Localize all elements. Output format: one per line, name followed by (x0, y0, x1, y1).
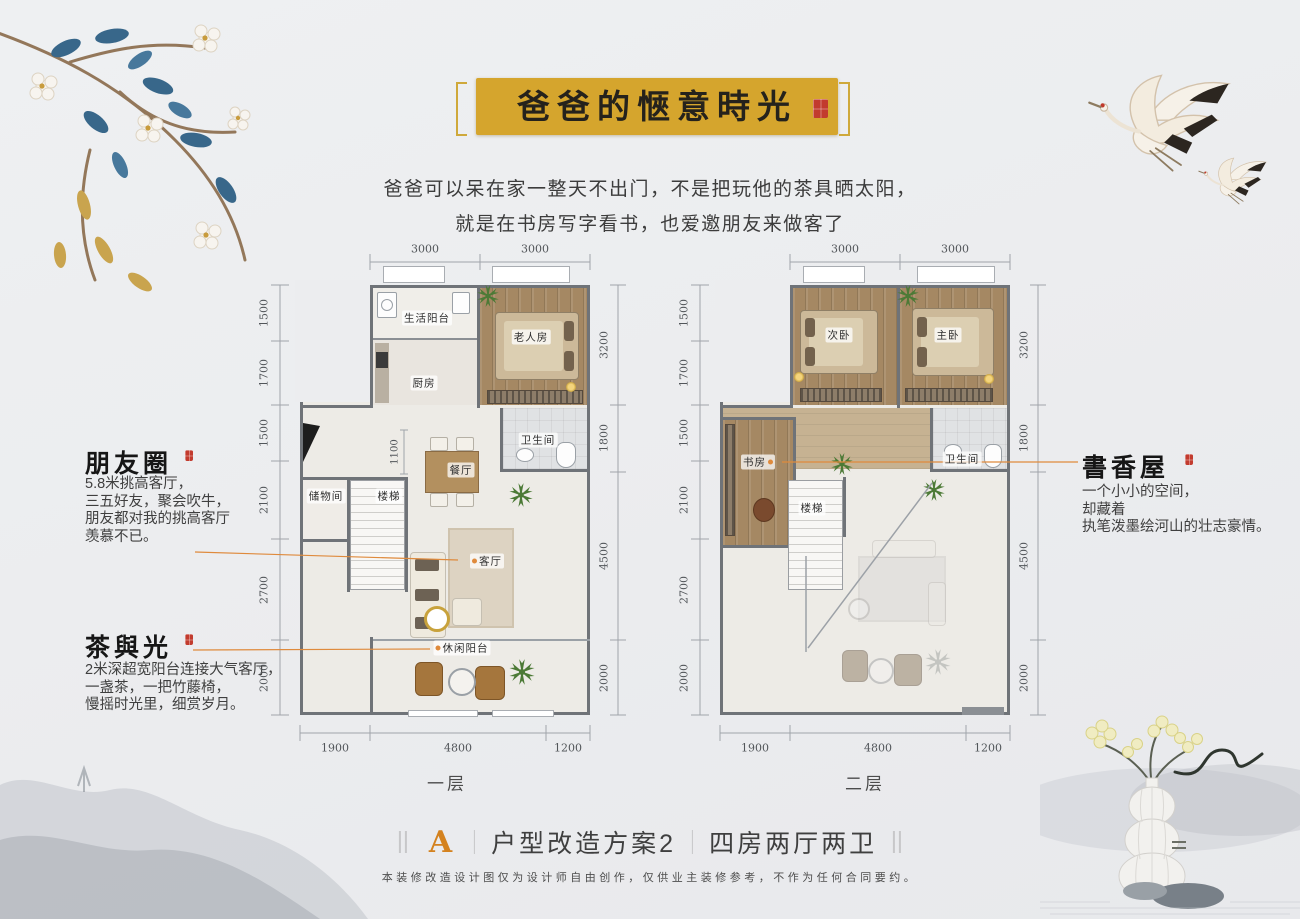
floor1-label: 一层 (427, 770, 467, 795)
floor2-plan: 次卧 主卧 书房 卫生间 楼梯 (0, 0, 1300, 919)
dim: 1200 (554, 742, 582, 755)
dim: 3000 (521, 243, 549, 256)
window (917, 266, 995, 283)
f2-notch (715, 280, 792, 402)
f1-label-elder-room: 老人房 (512, 330, 551, 345)
dim: 4500 (1018, 542, 1031, 570)
dim: 1800 (1018, 424, 1031, 452)
dim: 2100 (678, 486, 691, 514)
dim: 2000 (678, 664, 691, 692)
lamp-icon (984, 374, 994, 384)
dim: 3000 (411, 243, 439, 256)
dim: 1500 (678, 419, 691, 447)
toilet-icon (984, 444, 1002, 468)
plant-icon (896, 284, 920, 308)
callout-dot (768, 460, 773, 465)
dim: 2000 (1018, 664, 1031, 692)
dim: 3000 (831, 243, 859, 256)
wardrobe-icon (800, 388, 882, 402)
disclaimer-text: 本装修改造设计图仅为设计师自由创作，仅供业主装修参考，不作为任何合同要约。 (382, 869, 919, 885)
wardrobe-icon (905, 388, 993, 402)
divider (405, 831, 407, 853)
window (962, 707, 1004, 715)
dim: 4500 (598, 542, 611, 570)
floor2-label: 二层 (845, 770, 885, 795)
f1-label-stairs: 楼梯 (376, 489, 403, 504)
caption-scheme: 户型改造方案2 (491, 824, 676, 860)
callout-dot (472, 559, 477, 564)
f2-label-master-bedroom: 主卧 (935, 328, 962, 343)
f2-label-bathroom: 卫生间 (943, 452, 982, 467)
f1-label-service-balcony: 生活阳台 (402, 311, 452, 326)
f2-label-study: 书房 (741, 455, 775, 470)
plant-icon (922, 478, 946, 502)
f2-label-second-bedroom: 次卧 (826, 328, 853, 343)
ghost-chair (894, 654, 922, 686)
divider (474, 830, 475, 854)
dim: 1500 (258, 419, 271, 447)
divider (692, 830, 693, 854)
dim: 2000 (258, 664, 271, 692)
f2-label-stairs: 楼梯 (799, 501, 826, 516)
divider (399, 831, 401, 853)
dim: 2700 (258, 576, 271, 604)
dim: 3200 (1018, 331, 1031, 359)
f1-label-bathroom: 卫生间 (519, 433, 558, 448)
lamp-icon (794, 372, 804, 382)
plant-icon (830, 452, 854, 476)
dim: 1100 (390, 439, 401, 464)
f1-label-living: 客厅 (470, 554, 504, 569)
caption-layout: 四房两厅两卫 (709, 824, 877, 860)
divider (893, 831, 895, 853)
ghost-sofa (928, 582, 946, 626)
dim: 2700 (678, 576, 691, 604)
dim: 4800 (864, 742, 892, 755)
poster-root: 爸爸的愜意時光 爸爸可以呆在家一整天不出门，不是把玩他的茶具晒太阳， 就是在书房… (0, 0, 1300, 919)
divider (899, 831, 901, 853)
callout-dot (436, 646, 441, 651)
plan-letter: A (429, 825, 452, 860)
f2-stairs (788, 480, 843, 590)
window (803, 266, 865, 283)
ghost-sofa (872, 540, 936, 558)
dim: 1800 (598, 424, 611, 452)
dim: 2000 (598, 664, 611, 692)
dim: 2100 (258, 486, 271, 514)
dim: 3000 (941, 243, 969, 256)
f1-label-storage: 储物间 (307, 489, 346, 504)
ghost-table (848, 598, 870, 620)
dim: 1500 (258, 299, 271, 327)
f1-label-kitchen: 厨房 (411, 376, 438, 391)
dim: 1700 (678, 359, 691, 387)
dim: 1900 (321, 742, 349, 755)
ghost-table (868, 658, 894, 684)
dim: 3200 (598, 331, 611, 359)
dim: 1200 (974, 742, 1002, 755)
plant-icon (924, 648, 952, 676)
study-chair-icon (753, 498, 775, 522)
dim: 1700 (258, 359, 271, 387)
ghost-chair (842, 650, 868, 682)
footer-caption: A 户型改造方案2 四房两厅两卫 (399, 824, 901, 860)
dim: 4800 (444, 742, 472, 755)
f1-label-leisure-balcony: 休闲阳台 (434, 641, 491, 656)
dim: 1500 (678, 299, 691, 327)
dim: 1900 (741, 742, 769, 755)
bookshelf-icon (725, 424, 735, 536)
f1-label-dining: 餐厅 (448, 463, 475, 478)
